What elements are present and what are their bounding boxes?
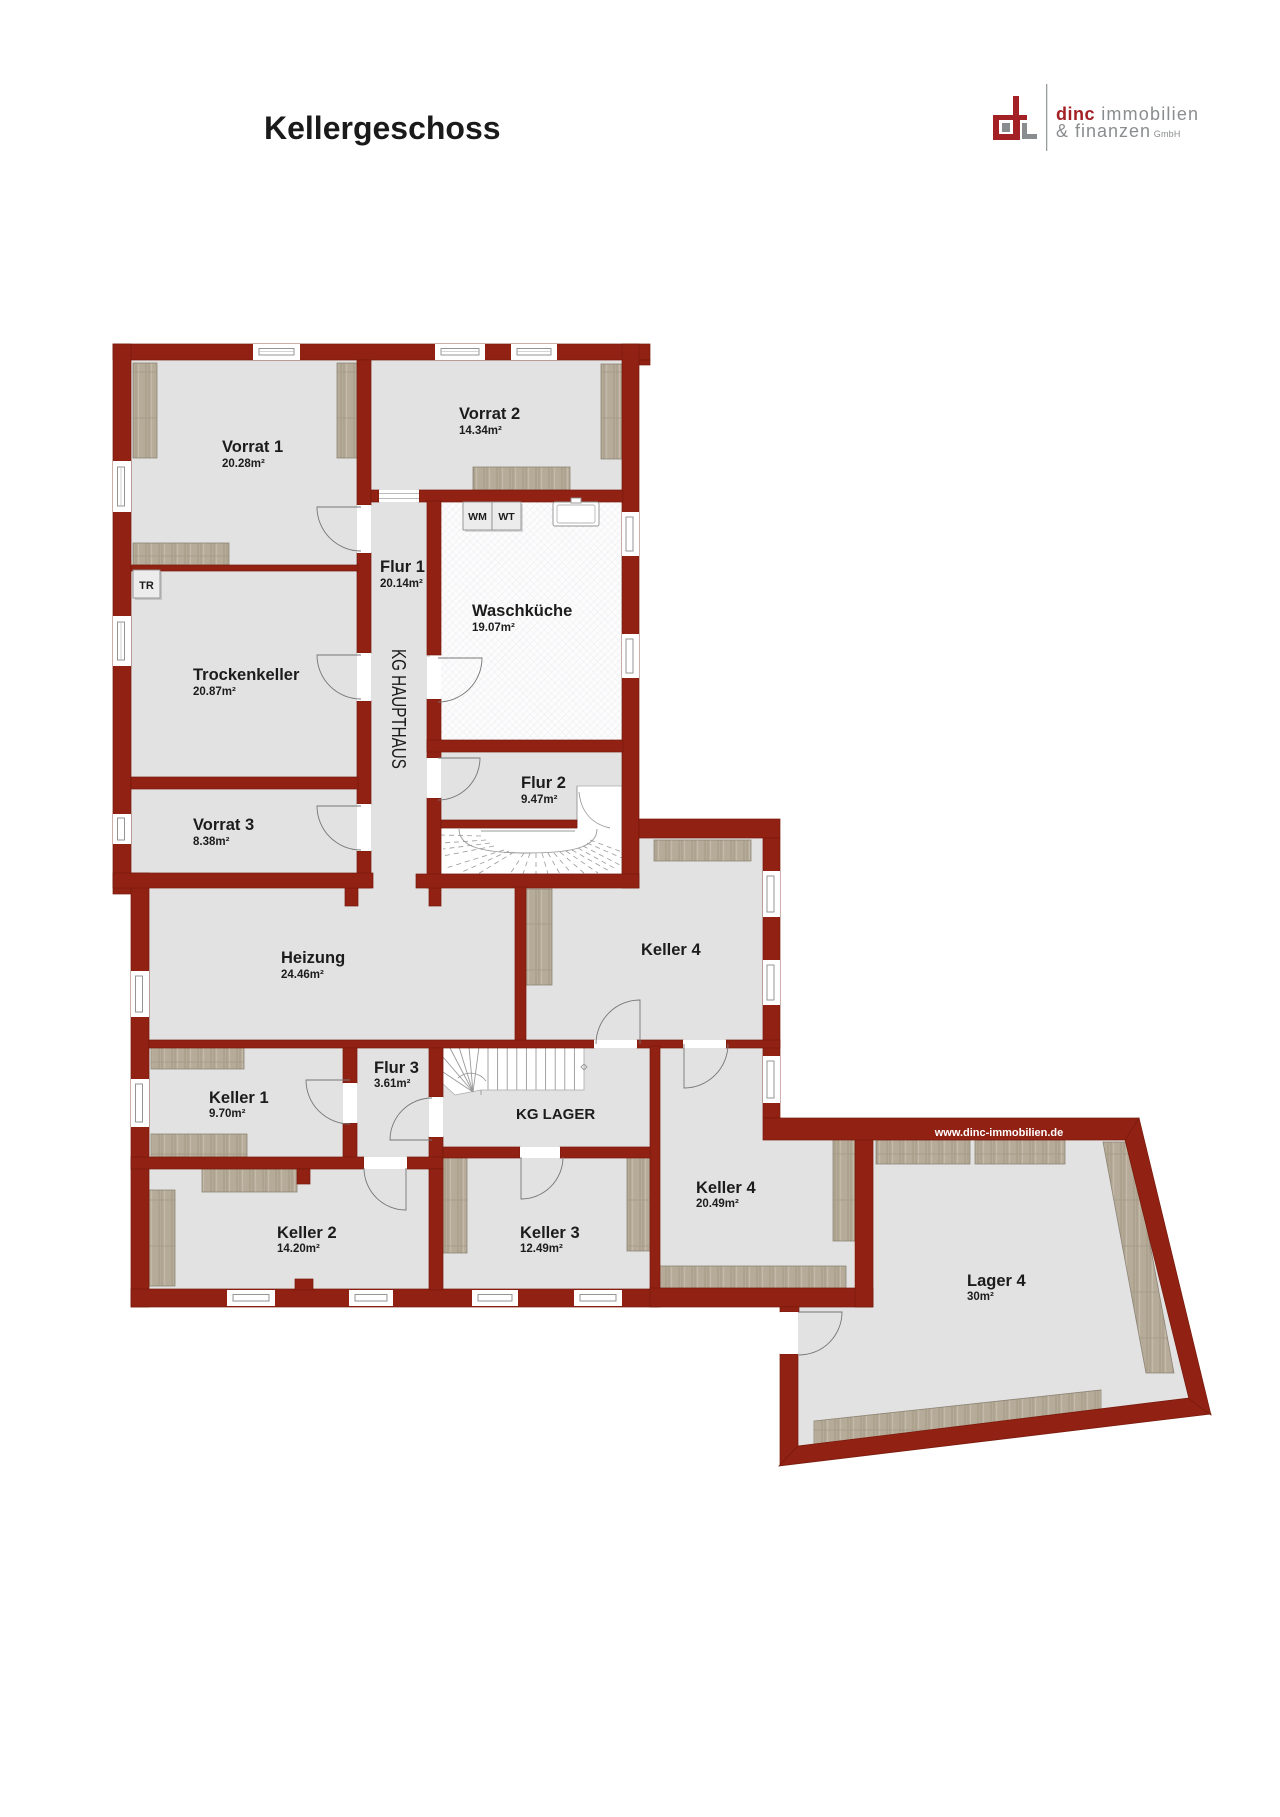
- svg-text:KG LAGER: KG LAGER: [516, 1106, 595, 1123]
- svg-text:9.70m²: 9.70m²: [209, 1108, 246, 1120]
- svg-text:Flur 2: Flur 2: [521, 774, 566, 792]
- svg-text:Keller 4: Keller 4: [641, 941, 701, 959]
- svg-text:30m²: 30m²: [967, 1291, 994, 1303]
- svg-text:14.34m²: 14.34m²: [459, 425, 502, 437]
- svg-text:WM: WM: [468, 511, 487, 523]
- svg-text:Keller 2: Keller 2: [277, 1224, 337, 1242]
- svg-text:Waschküche: Waschküche: [472, 602, 572, 620]
- svg-text:Flur 3: Flur 3: [374, 1059, 419, 1077]
- svg-text:Vorrat 1: Vorrat 1: [222, 438, 283, 456]
- svg-text:3.61m²: 3.61m²: [374, 1078, 411, 1090]
- svg-text:Heizung: Heizung: [281, 949, 345, 967]
- svg-text:19.07m²: 19.07m²: [472, 622, 515, 634]
- svg-text:9.47m²: 9.47m²: [521, 794, 558, 806]
- svg-text:WT: WT: [498, 511, 515, 523]
- svg-text:Keller 1: Keller 1: [209, 1089, 269, 1107]
- svg-text:TR: TR: [139, 580, 154, 592]
- svg-text:24.46m²: 24.46m²: [281, 969, 324, 981]
- svg-text:20.28m²: 20.28m²: [222, 458, 265, 470]
- svg-text:www.dinc-immobilien.de: www.dinc-immobilien.de: [934, 1127, 1064, 1139]
- svg-text:20.14m²: 20.14m²: [380, 578, 423, 590]
- svg-text:Keller 3: Keller 3: [520, 1224, 580, 1242]
- svg-text:8.38m²: 8.38m²: [193, 836, 230, 848]
- svg-text:20.49m²: 20.49m²: [696, 1198, 739, 1210]
- svg-text:Vorrat 2: Vorrat 2: [459, 405, 520, 423]
- svg-text:Keller 4: Keller 4: [696, 1179, 756, 1197]
- svg-text:20.87m²: 20.87m²: [193, 686, 236, 698]
- svg-text:Trockenkeller: Trockenkeller: [193, 666, 300, 684]
- svg-text:12.49m²: 12.49m²: [520, 1243, 563, 1255]
- svg-text:Lager 4: Lager 4: [967, 1272, 1027, 1290]
- svg-text:Vorrat 3: Vorrat 3: [193, 816, 254, 834]
- svg-text:Flur 1: Flur 1: [380, 558, 425, 576]
- svg-text:Kellergeschoss: Kellergeschoss: [264, 110, 501, 146]
- svg-text:14.20m²: 14.20m²: [277, 1243, 320, 1255]
- svg-text:KG HAUPTHAUS: KG HAUPTHAUS: [387, 649, 410, 769]
